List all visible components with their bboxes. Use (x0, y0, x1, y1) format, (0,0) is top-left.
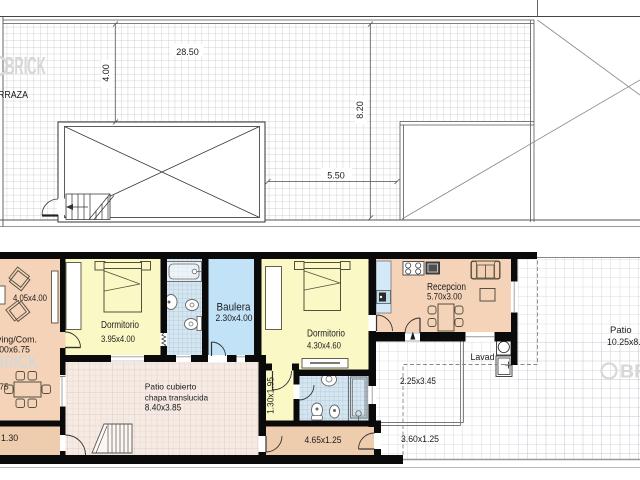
svg-text:10.25x8.00: 10.25x8.00 (607, 337, 640, 347)
svg-text:5.70x3.00: 5.70x3.00 (427, 292, 462, 302)
svg-text:3.60x1.25: 3.60x1.25 (401, 434, 439, 444)
svg-text:BRICK: BRICK (0, 352, 38, 372)
svg-text:1.75: 1.75 (0, 382, 9, 392)
svg-text:Baulera: Baulera (217, 302, 252, 314)
svg-text:Living/Com.: Living/Com. (0, 335, 37, 345)
svg-text:BRIC: BRIC (620, 362, 640, 382)
svg-text:1.30x1.95: 1.30x1.95 (266, 377, 276, 414)
svg-text:28.50: 28.50 (176, 47, 199, 57)
svg-text:Dormitorio: Dormitorio (101, 320, 139, 331)
svg-text:2.30x4.00: 2.30x4.00 (216, 313, 253, 323)
svg-text:8.40x3.85: 8.40x3.85 (145, 403, 182, 413)
svg-text:Patio cubierto: Patio cubierto (145, 382, 197, 392)
svg-text:1.30: 1.30 (1, 433, 18, 443)
svg-text:Patio: Patio (610, 325, 632, 336)
svg-text:4.30x4.60: 4.30x4.60 (307, 341, 341, 351)
svg-text:4.00: 4.00 (101, 64, 111, 82)
svg-text:Dormitorio: Dormitorio (307, 329, 345, 340)
svg-text:chapa translucida: chapa translucida (145, 393, 209, 403)
svg-text:8.20: 8.20 (355, 101, 365, 119)
svg-text:5.50: 5.50 (327, 171, 345, 181)
svg-text:2.25x3.45: 2.25x3.45 (400, 376, 436, 386)
svg-text:4.65x1.25: 4.65x1.25 (305, 435, 342, 445)
svg-text:RRAZA: RRAZA (0, 89, 28, 101)
svg-text:3.95x4.00: 3.95x4.00 (101, 334, 135, 344)
svg-text:4.05x4.00: 4.05x4.00 (13, 293, 47, 303)
svg-text:BRICK: BRICK (5, 53, 46, 81)
svg-text:Lavad: Lavad (471, 352, 495, 362)
